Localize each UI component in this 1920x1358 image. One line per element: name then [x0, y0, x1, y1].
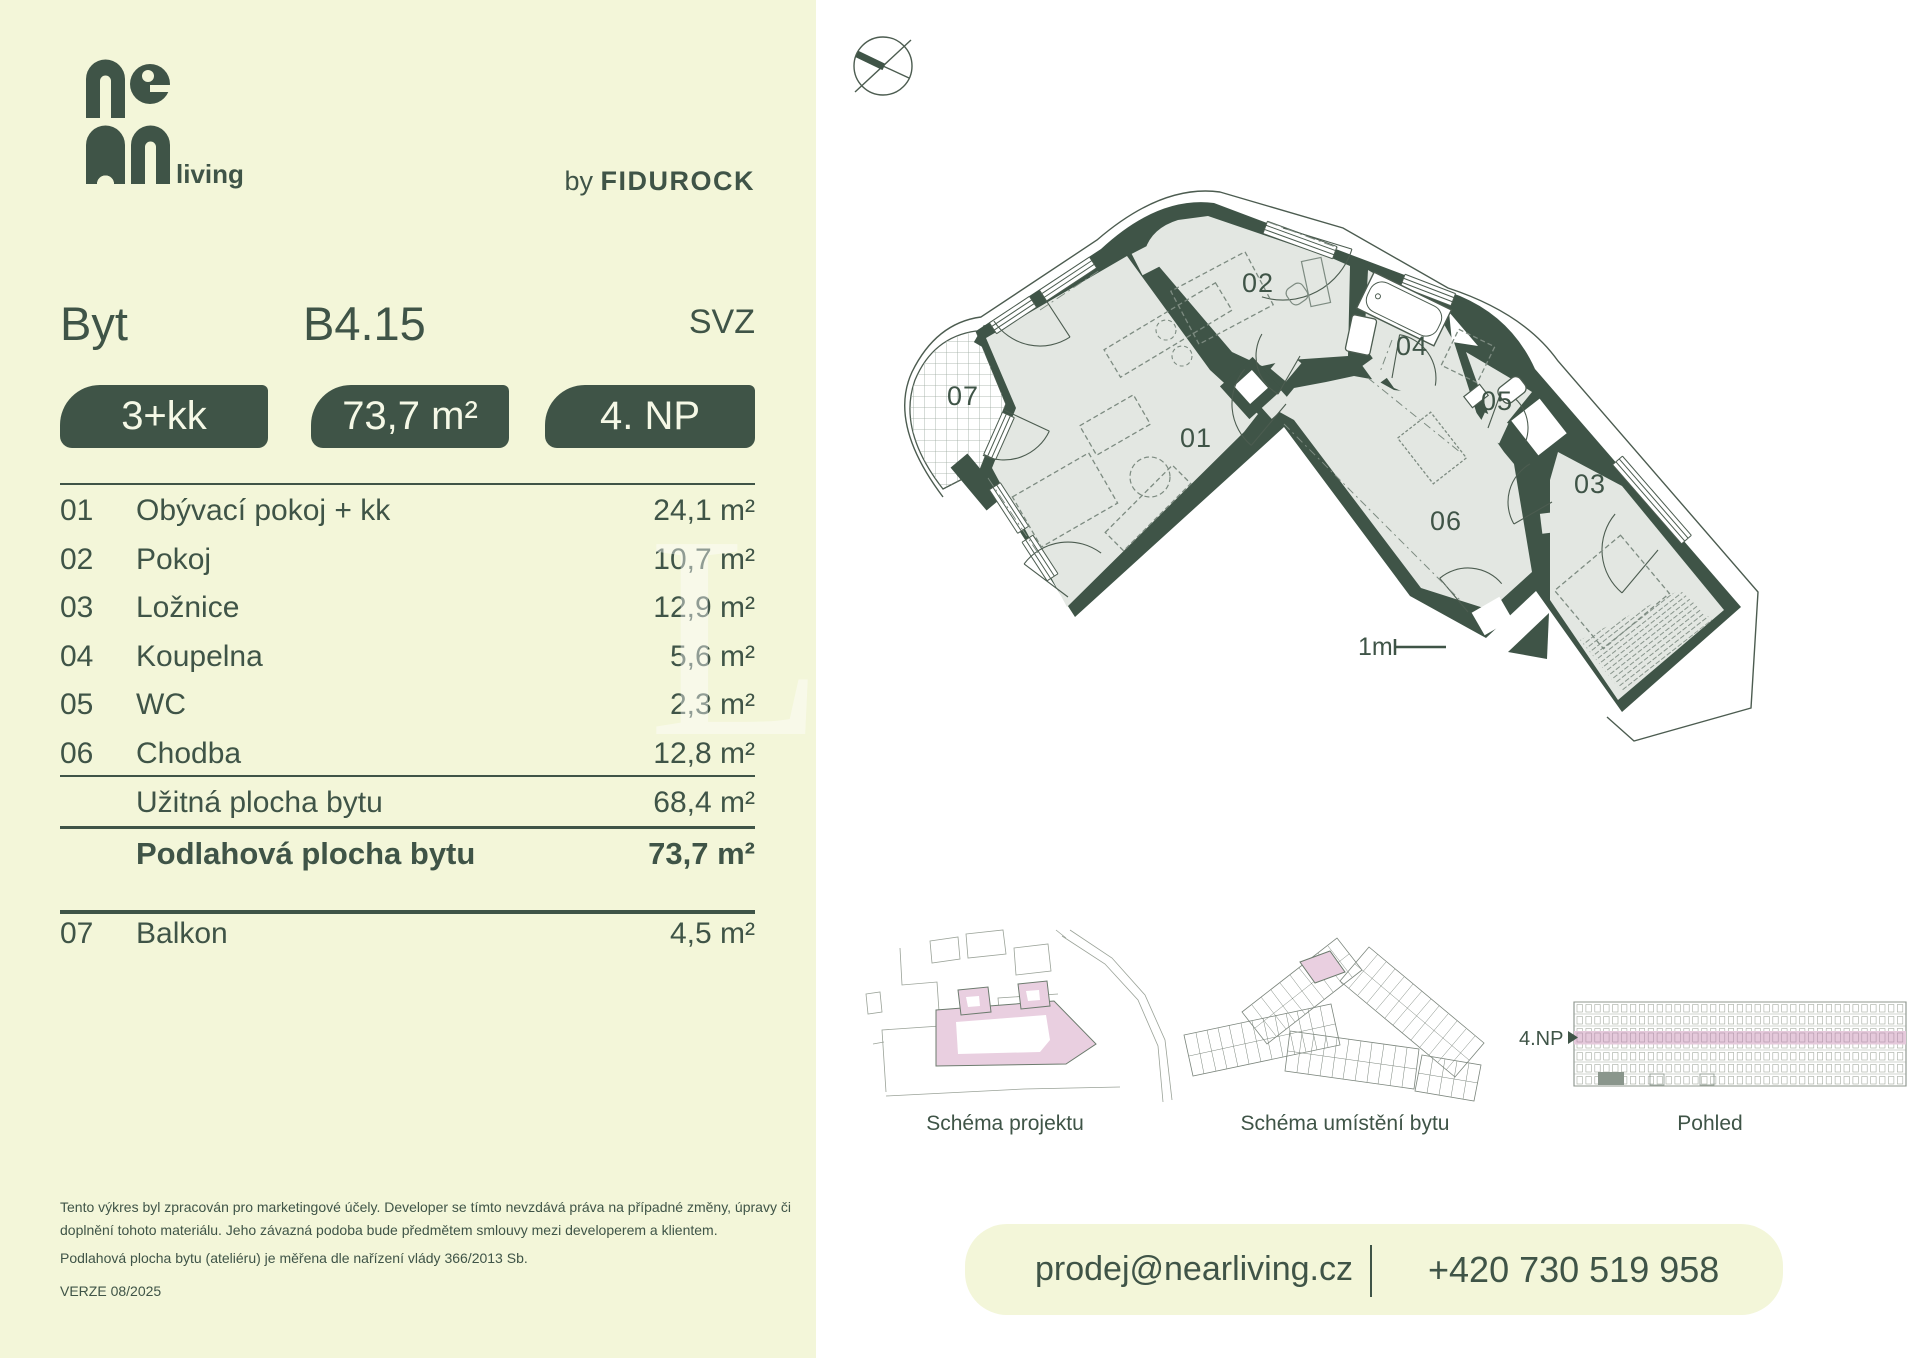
svg-text:1m: 1m — [1358, 633, 1393, 661]
svg-text:01: 01 — [1180, 423, 1212, 453]
svg-text:04: 04 — [1396, 331, 1428, 361]
svg-text:4.NP: 4.NP — [1519, 1028, 1563, 1050]
svg-text:03: 03 — [1574, 469, 1606, 499]
svg-text:05: 05 — [1481, 386, 1513, 416]
svg-text:07: 07 — [947, 381, 979, 411]
svg-text:06: 06 — [1430, 506, 1462, 536]
svg-text:02: 02 — [1242, 268, 1274, 298]
